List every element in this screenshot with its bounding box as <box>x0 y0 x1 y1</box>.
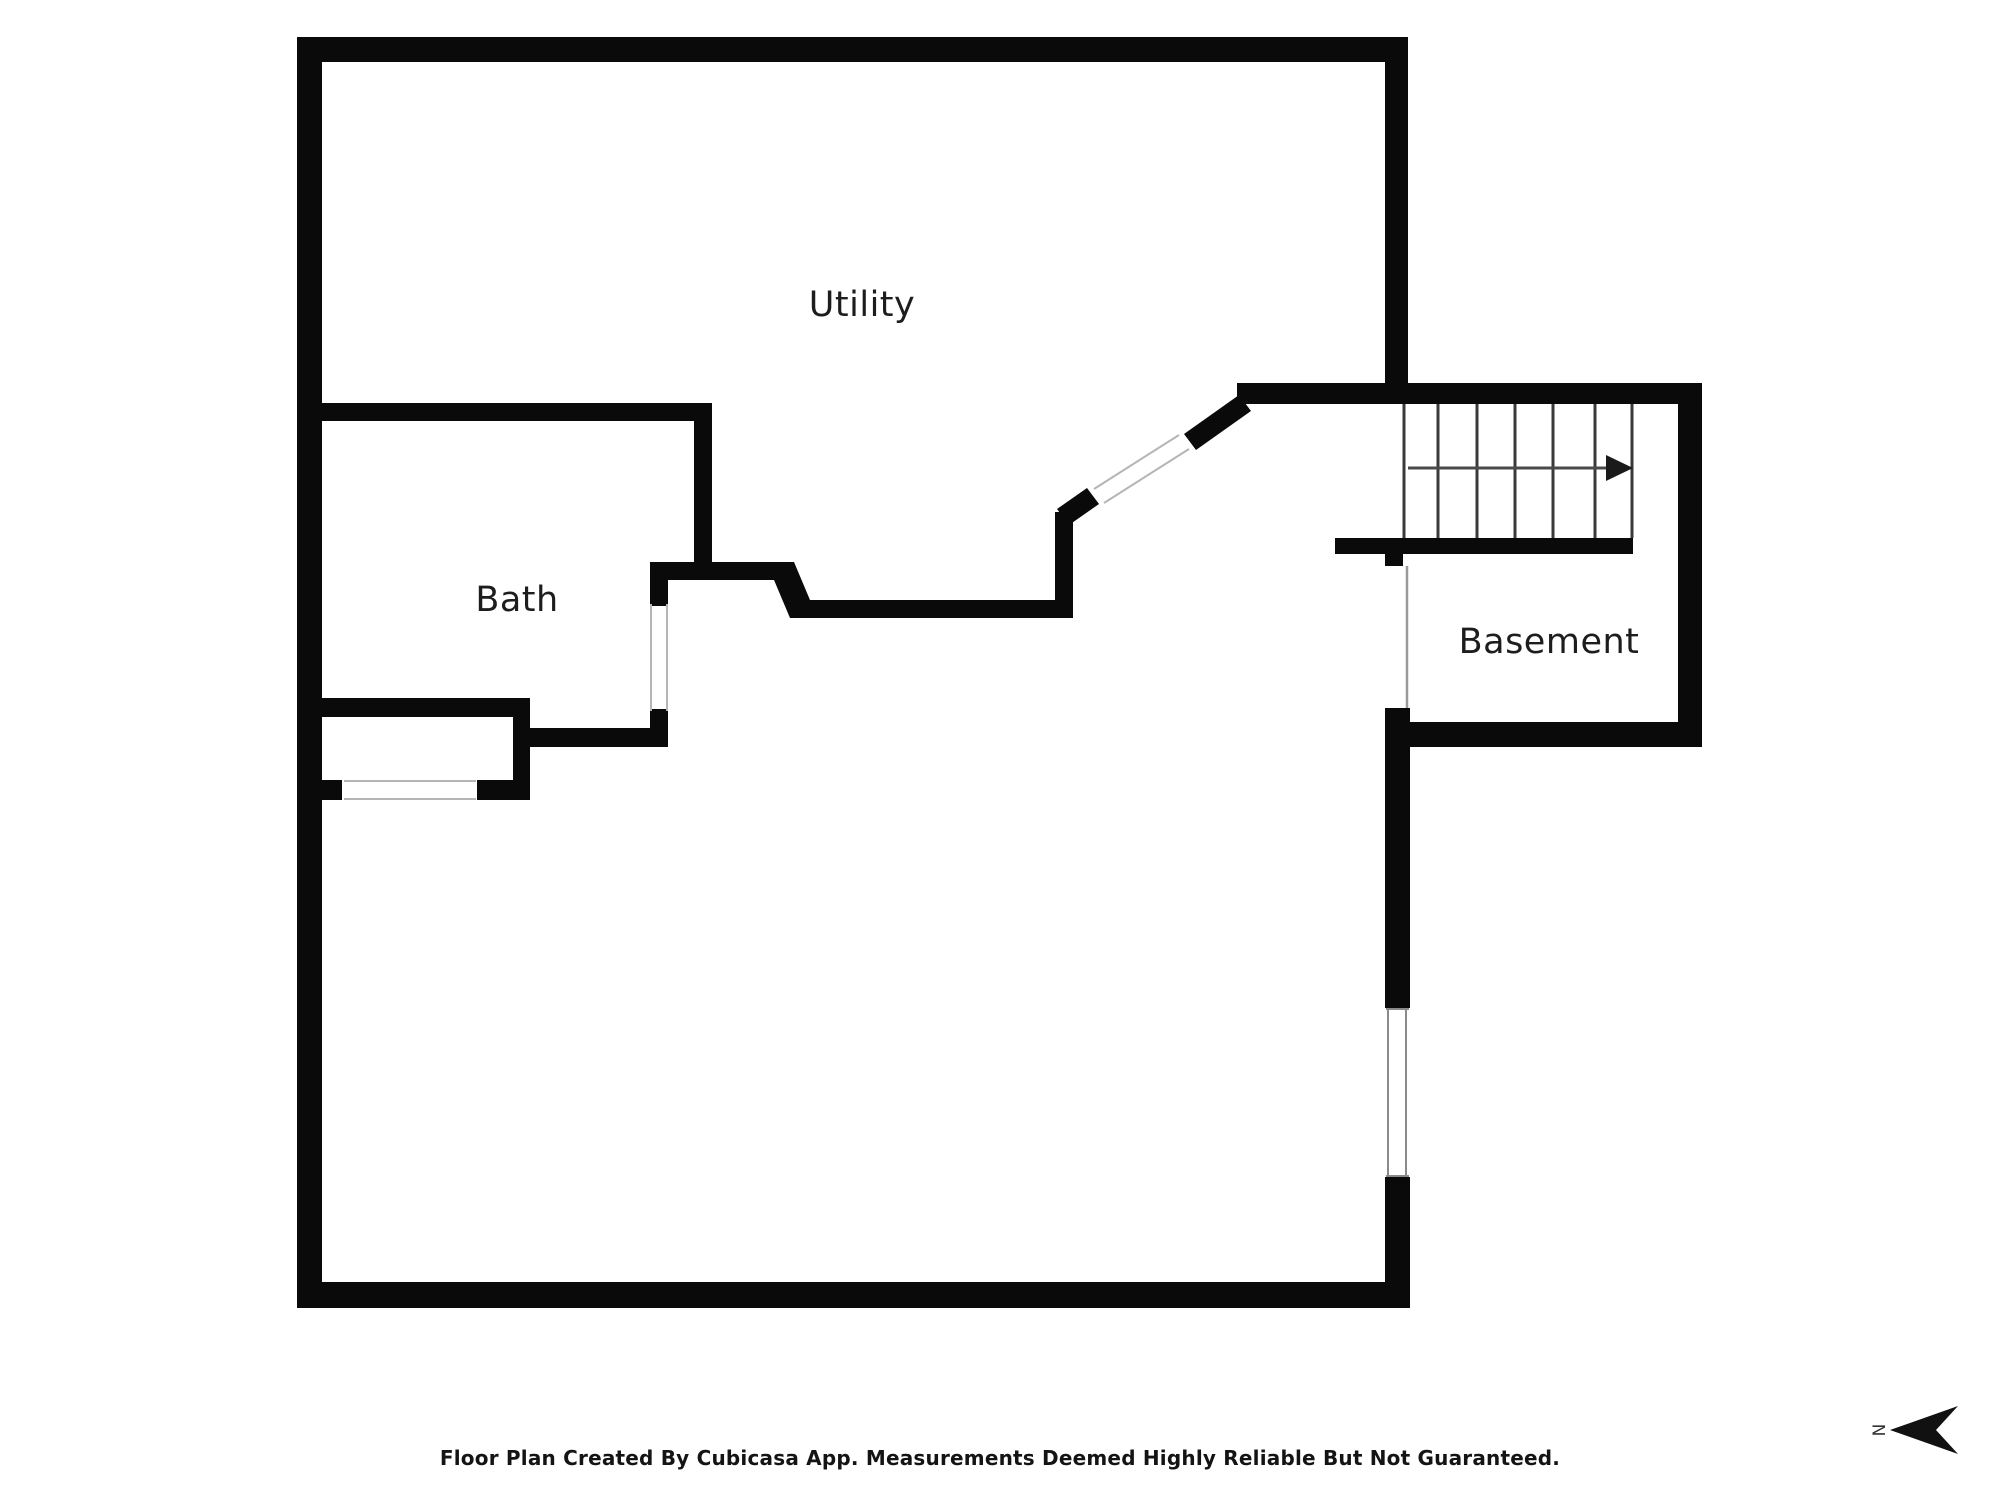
wall-diagonal-stub-upper <box>1184 395 1251 450</box>
floor-plan-page: N Utility Bath Basement Floor Plan Creat… <box>0 0 2000 1497</box>
diagonal-opening-line <box>1104 449 1189 503</box>
room-label-basement: Basement <box>1459 622 1640 662</box>
plan-lines-layer: N <box>0 0 2000 1497</box>
footer-disclaimer: Floor Plan Created By Cubicasa App. Meas… <box>0 1446 2000 1470</box>
room-label-bath: Bath <box>475 580 558 620</box>
wall-diagonal-jog <box>774 562 810 618</box>
north-letter: N <box>1870 1424 1890 1437</box>
room-label-utility: Utility <box>809 285 915 325</box>
diagonal-opening-line <box>1094 435 1179 489</box>
wall-diagonal-stub-lower <box>1057 488 1099 525</box>
stair-direction-arrow-head <box>1606 455 1633 481</box>
staircase <box>1404 404 1633 538</box>
window <box>1386 1009 1409 1176</box>
